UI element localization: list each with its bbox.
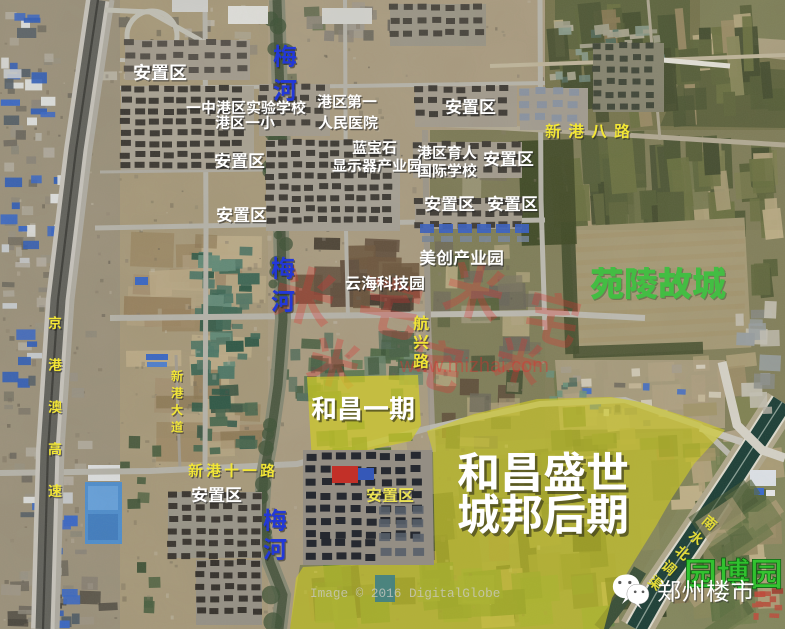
svg-text:Image © 2016 DigitalGlobe: Image © 2016 DigitalGlobe	[310, 586, 500, 601]
